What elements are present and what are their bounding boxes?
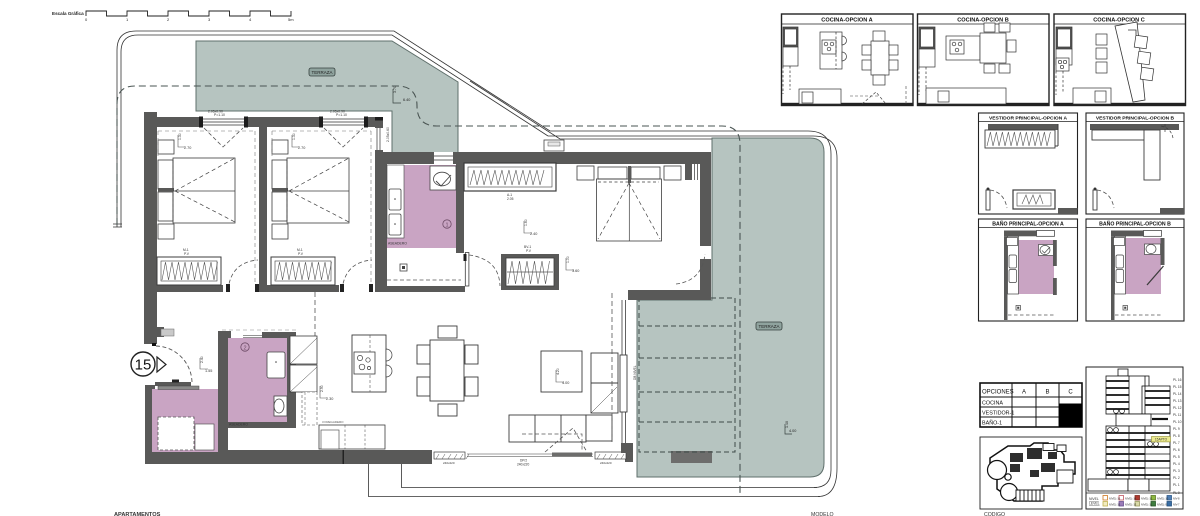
svg-text:2.70: 2.70 bbox=[184, 146, 191, 150]
svg-text:OPCIONES: OPCIONES bbox=[982, 390, 1014, 396]
svg-text:PL 1: PL 1 bbox=[1173, 483, 1180, 487]
svg-text:VESTIDOR-1: VESTIDOR-1 bbox=[982, 411, 1014, 417]
svg-text:PL 3: PL 3 bbox=[1173, 469, 1180, 473]
svg-text:NIV-7: NIV-7 bbox=[1173, 503, 1180, 507]
svg-text:1.00: 1.00 bbox=[566, 256, 570, 263]
svg-text:CODIGO: CODIGO bbox=[984, 512, 1005, 516]
svg-text:BAÑO-1: BAÑO-1 bbox=[982, 420, 1002, 427]
svg-text:COCINA-OPCION B: COCINA-OPCION B bbox=[957, 18, 1009, 24]
svg-text:PL 6: PL 6 bbox=[1173, 448, 1180, 452]
svg-text:2.40: 2.40 bbox=[530, 232, 537, 236]
svg-text:NIVEL-15: NIVEL-15 bbox=[1109, 503, 1121, 507]
svg-text:NIVEL: NIVEL bbox=[1089, 497, 1099, 501]
svg-text:NIVEL-9: NIVEL-9 bbox=[1157, 503, 1167, 507]
svg-text:PL 10: PL 10 bbox=[1173, 420, 1182, 424]
svg-text:LEVEL: LEVEL bbox=[1089, 502, 1100, 506]
svg-text:240x220: 240x220 bbox=[517, 463, 529, 467]
svg-text:COCINA: COCINA bbox=[982, 401, 1003, 407]
svg-text:3.60: 3.60 bbox=[572, 269, 579, 273]
svg-text:5m: 5m bbox=[288, 17, 294, 22]
svg-text:MODELO: MODELO bbox=[811, 512, 833, 516]
svg-text:A: A bbox=[1022, 390, 1026, 396]
svg-text:15: 15 bbox=[135, 357, 152, 374]
svg-text:NIVEL-13: NIVEL-13 bbox=[1125, 503, 1137, 507]
svg-text:VESTIDOR PRINCIPAL-OPCION A: VESTIDOR PRINCIPAL-OPCION A bbox=[989, 116, 1067, 122]
svg-text:PL 9: PL 9 bbox=[1173, 427, 1180, 431]
svg-text:240x220: 240x220 bbox=[443, 461, 455, 465]
svg-text:TERRAZA: TERRAZA bbox=[311, 70, 332, 75]
svg-text:4.00: 4.00 bbox=[789, 429, 796, 433]
svg-text:PL 7: PL 7 bbox=[1173, 441, 1180, 445]
svg-text:PL 2: PL 2 bbox=[1173, 476, 1180, 480]
svg-text:Escala Gráfica: Escala Gráfica bbox=[52, 11, 84, 16]
svg-text:ASEADERO: ASEADERO bbox=[388, 242, 407, 246]
svg-text:C: C bbox=[1068, 390, 1073, 396]
svg-text:TERRAZA: TERRAZA bbox=[758, 324, 779, 329]
svg-text:1.30: 1.30 bbox=[178, 133, 182, 140]
svg-text:P.V: P.V bbox=[298, 252, 304, 256]
svg-text:PL 15: PL 15 bbox=[1173, 385, 1182, 389]
svg-text:1.55: 1.55 bbox=[205, 369, 212, 373]
svg-text:2.70: 2.70 bbox=[298, 146, 305, 150]
svg-text:BAÑO PRINCIPAL-OPCION B: BAÑO PRINCIPAL-OPCION B bbox=[1099, 221, 1171, 228]
svg-text:3 FREGADERO: 3 FREGADERO bbox=[322, 420, 344, 424]
svg-text:COCINA-OPCION A: COCINA-OPCION A bbox=[821, 18, 872, 24]
svg-text:P=1.10: P=1.10 bbox=[214, 113, 225, 117]
svg-text:240x220: 240x220 bbox=[600, 461, 612, 465]
svg-text:2.05: 2.05 bbox=[507, 197, 514, 201]
svg-text:NIV-8: NIV-8 bbox=[1173, 497, 1180, 501]
svg-text:1.60: 1.60 bbox=[524, 219, 528, 226]
svg-text:PL 14: PL 14 bbox=[1173, 392, 1182, 396]
svg-text:BAÑO PRINCIPAL-OPCION A: BAÑO PRINCIPAL-OPCION A bbox=[992, 221, 1064, 228]
svg-text:VESTIDOR PRINCIPAL-OPCION B: VESTIDOR PRINCIPAL-OPCION B bbox=[1096, 116, 1175, 122]
svg-text:PL 13: PL 13 bbox=[1173, 399, 1182, 403]
svg-text:NIVEL-16: NIVEL-16 bbox=[1109, 497, 1121, 501]
svg-text:4.00: 4.00 bbox=[562, 381, 569, 385]
svg-text:4.20: 4.20 bbox=[556, 368, 560, 375]
svg-text:NIVEL-10: NIVEL-10 bbox=[1157, 497, 1169, 501]
svg-text:PL 8: PL 8 bbox=[1173, 434, 1180, 438]
svg-text:PL 4: PL 4 bbox=[1173, 462, 1180, 466]
svg-text:2.90: 2.90 bbox=[320, 385, 324, 392]
svg-text:1.40: 1.40 bbox=[785, 421, 789, 428]
svg-text:PL 11: PL 11 bbox=[1173, 413, 1181, 417]
svg-text:B: B bbox=[1045, 390, 1049, 396]
svg-text:PL 12: PL 12 bbox=[1173, 406, 1182, 410]
svg-text:1.30: 1.30 bbox=[292, 133, 296, 140]
svg-text:DB NIVEL: DB NIVEL bbox=[633, 365, 637, 380]
svg-text:APARTAMENTOS: APARTAMENTOS bbox=[114, 512, 161, 516]
svg-text:ASEADERO: ASEADERO bbox=[229, 423, 248, 427]
svg-text:2: 2 bbox=[243, 345, 246, 351]
svg-text:3.70: 3.70 bbox=[393, 86, 397, 93]
svg-text:6.40: 6.40 bbox=[403, 98, 410, 102]
svg-text:2.40: 2.40 bbox=[200, 356, 204, 363]
svg-text:1: 1 bbox=[445, 222, 448, 228]
svg-text:P.V: P.V bbox=[526, 249, 532, 253]
svg-text:15APTO: 15APTO bbox=[1155, 438, 1168, 442]
svg-text:2.30: 2.30 bbox=[326, 397, 333, 401]
svg-text:NIVEL-11: NIVEL-11 bbox=[1141, 503, 1153, 507]
svg-text:PL 16: PL 16 bbox=[1173, 378, 1182, 382]
svg-text:NIVEL-14: NIVEL-14 bbox=[1125, 497, 1137, 501]
svg-text:2.05x0.60: 2.05x0.60 bbox=[386, 127, 390, 142]
svg-text:NIVEL-12: NIVEL-12 bbox=[1141, 497, 1153, 501]
svg-text:PL 5: PL 5 bbox=[1173, 455, 1180, 459]
svg-text:P=1.10: P=1.10 bbox=[336, 113, 347, 117]
svg-text:P.V: P.V bbox=[184, 252, 190, 256]
